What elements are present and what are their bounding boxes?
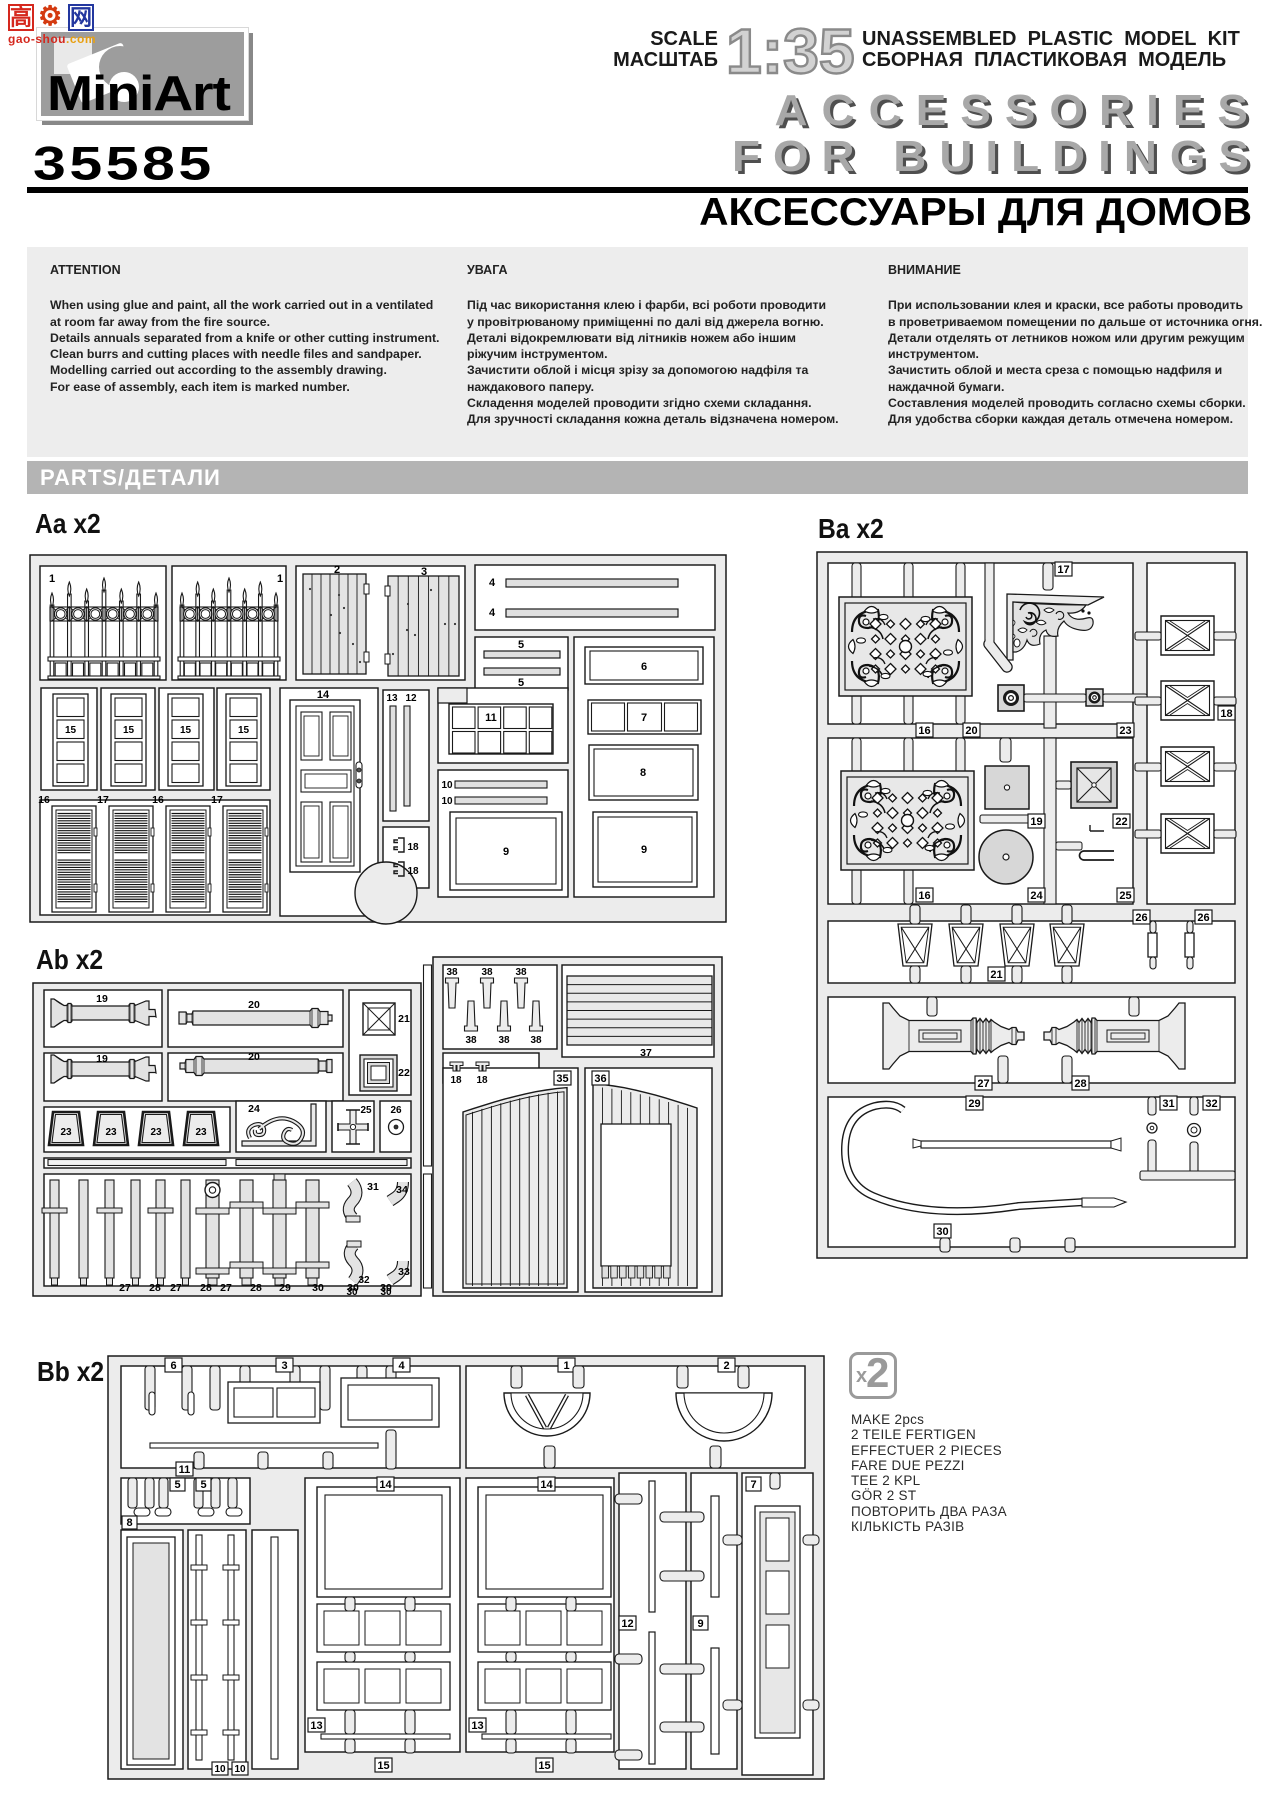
svg-text:30: 30 [936,1226,948,1238]
svg-text:38: 38 [515,967,527,978]
svg-text:1: 1 [563,1360,569,1372]
svg-text:5: 5 [174,1479,180,1491]
svg-text:27: 27 [220,1282,232,1294]
svg-text:16: 16 [38,794,50,806]
svg-text:14: 14 [379,1479,392,1491]
svg-text:22: 22 [398,1067,410,1079]
svg-text:13: 13 [310,1720,322,1732]
svg-text:8: 8 [126,1517,132,1529]
svg-text:24: 24 [1030,890,1043,902]
svg-text:27: 27 [119,1282,131,1294]
svg-text:35: 35 [556,1073,568,1085]
svg-text:32: 32 [358,1275,370,1286]
svg-text:31: 31 [1162,1098,1174,1110]
svg-text:4: 4 [398,1360,405,1372]
svg-text:2: 2 [723,1360,729,1372]
svg-text:11: 11 [179,1464,191,1476]
svg-text:8: 8 [640,767,646,779]
svg-text:1: 1 [49,573,55,585]
svg-text:31: 31 [367,1181,379,1193]
svg-text:25: 25 [360,1105,372,1116]
svg-text:10: 10 [214,1764,226,1775]
svg-text:15: 15 [238,725,250,736]
svg-text:23: 23 [60,1127,72,1138]
svg-text:11: 11 [485,712,497,724]
svg-text:14: 14 [540,1479,553,1491]
svg-text:30: 30 [380,1287,392,1298]
svg-text:38: 38 [446,967,458,978]
svg-text:15: 15 [377,1760,389,1772]
svg-text:7: 7 [641,712,647,724]
svg-text:6: 6 [641,661,647,673]
svg-text:20: 20 [965,725,977,737]
svg-text:1: 1 [277,573,283,585]
svg-text:17: 17 [1057,564,1069,576]
svg-text:18: 18 [407,842,419,853]
svg-text:15: 15 [65,725,77,736]
svg-text:18: 18 [407,866,419,877]
svg-text:10: 10 [441,780,453,791]
svg-text:18: 18 [476,1075,488,1086]
svg-text:38: 38 [498,1035,510,1046]
svg-text:28: 28 [250,1282,262,1294]
svg-text:15: 15 [538,1760,550,1772]
svg-text:13: 13 [386,693,398,704]
svg-text:38: 38 [465,1035,477,1046]
svg-text:26: 26 [1135,912,1147,924]
svg-text:7: 7 [750,1479,756,1491]
svg-text:4: 4 [489,577,496,589]
svg-text:16: 16 [918,725,930,737]
svg-text:18: 18 [450,1075,462,1086]
svg-text:28: 28 [149,1282,161,1294]
svg-text:13: 13 [471,1720,483,1732]
svg-text:23: 23 [1119,725,1131,737]
svg-text:12: 12 [405,693,417,704]
svg-text:14: 14 [317,689,330,701]
svg-text:17: 17 [211,794,223,806]
svg-text:3: 3 [281,1360,287,1372]
svg-text:10: 10 [441,796,453,807]
svg-text:21: 21 [990,969,1002,981]
svg-text:24: 24 [248,1103,260,1115]
svg-text:27: 27 [977,1078,989,1090]
svg-text:20: 20 [248,999,260,1011]
svg-text:17: 17 [97,794,109,806]
svg-text:38: 38 [481,967,493,978]
svg-text:30: 30 [346,1287,358,1298]
svg-text:19: 19 [1030,816,1042,828]
svg-text:15: 15 [123,725,135,736]
svg-text:5: 5 [518,639,524,651]
svg-text:26: 26 [390,1105,402,1116]
svg-text:22: 22 [1115,816,1127,828]
svg-text:5: 5 [518,677,524,689]
svg-text:23: 23 [105,1127,117,1138]
svg-text:16: 16 [918,890,930,902]
svg-text:4: 4 [489,607,496,619]
svg-text:32: 32 [1205,1098,1217,1110]
svg-text:23: 23 [150,1127,162,1138]
svg-text:10: 10 [234,1764,246,1775]
svg-text:9: 9 [697,1618,703,1630]
svg-text:20: 20 [248,1051,260,1063]
svg-text:3: 3 [421,566,427,578]
svg-text:38: 38 [530,1035,542,1046]
svg-text:6: 6 [170,1360,176,1372]
svg-text:19: 19 [96,1053,108,1065]
svg-text:27: 27 [170,1282,182,1294]
svg-text:28: 28 [200,1282,212,1294]
svg-text:25: 25 [1119,890,1131,902]
svg-text:29: 29 [279,1282,291,1294]
svg-text:29: 29 [968,1098,980,1110]
svg-text:28: 28 [1074,1078,1086,1090]
svg-text:5: 5 [200,1479,206,1491]
svg-text:9: 9 [641,844,647,856]
svg-text:19: 19 [96,993,108,1005]
svg-text:16: 16 [152,794,164,806]
svg-text:12: 12 [621,1618,633,1630]
svg-text:37: 37 [640,1047,652,1059]
svg-text:34: 34 [396,1184,408,1196]
svg-text:18: 18 [1220,708,1232,720]
svg-text:21: 21 [398,1013,410,1025]
svg-text:15: 15 [180,725,192,736]
svg-text:23: 23 [195,1127,207,1138]
svg-text:26: 26 [1197,912,1209,924]
svg-text:2: 2 [334,564,340,576]
svg-text:30: 30 [312,1282,324,1294]
svg-text:36: 36 [594,1073,606,1085]
svg-text:9: 9 [503,846,509,858]
svg-text:33: 33 [398,1266,410,1278]
